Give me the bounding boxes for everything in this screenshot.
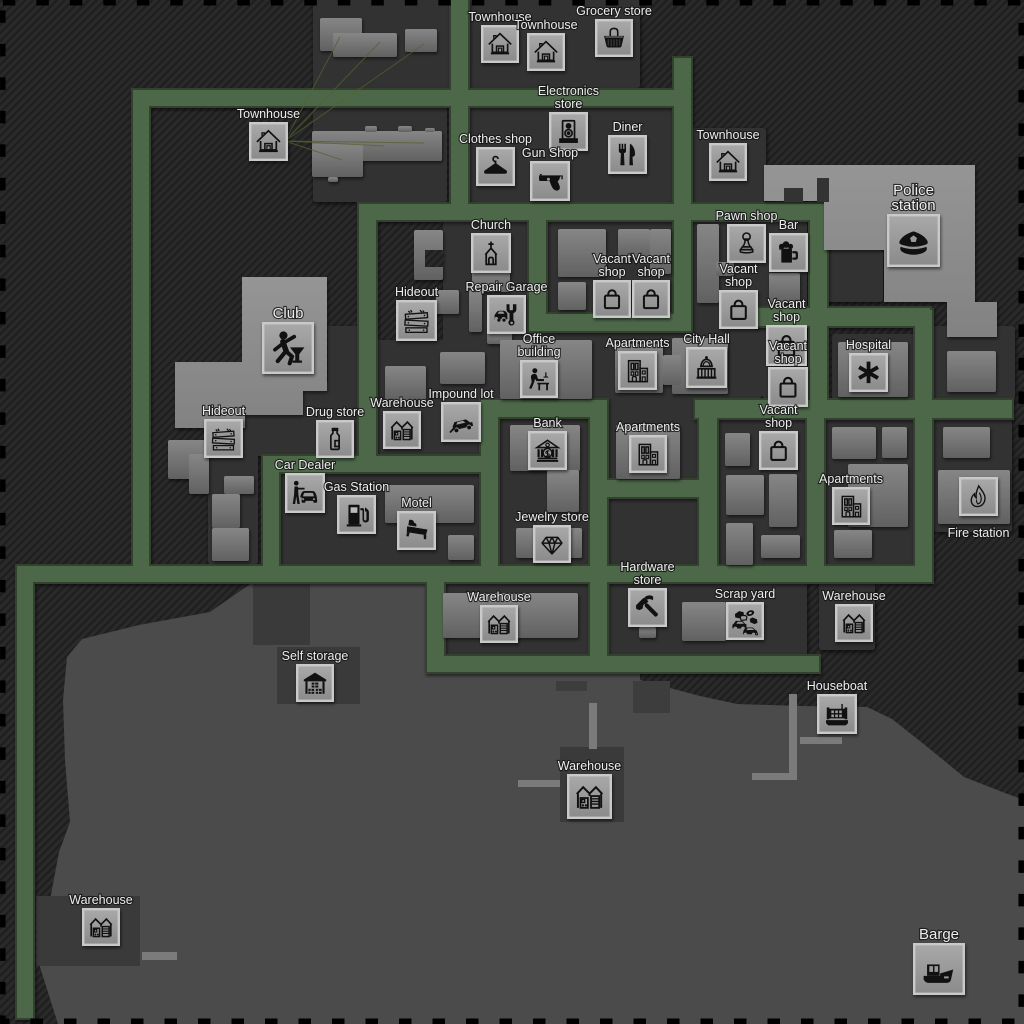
svg-text:Diner: Diner bbox=[613, 120, 643, 134]
svg-text:Vacant: Vacant bbox=[720, 262, 759, 276]
svg-text:Clothes shop: Clothes shop bbox=[459, 132, 532, 146]
svg-text:Pawn shop: Pawn shop bbox=[716, 209, 778, 223]
svg-text:Repair Garage: Repair Garage bbox=[466, 280, 548, 294]
svg-text:Vacant: Vacant bbox=[769, 339, 808, 353]
svg-text:Electronics: Electronics bbox=[538, 84, 599, 98]
svg-text:shop: shop bbox=[637, 265, 664, 279]
svg-text:Vacant: Vacant bbox=[760, 403, 799, 417]
svg-text:station: station bbox=[891, 197, 935, 214]
svg-text:Apartments: Apartments bbox=[819, 472, 883, 486]
svg-text:Hardware: Hardware bbox=[620, 560, 674, 574]
svg-text:Club: Club bbox=[273, 305, 304, 322]
svg-text:shop: shop bbox=[598, 265, 625, 279]
svg-text:Gas Station: Gas Station bbox=[324, 480, 389, 494]
svg-text:City Hall: City Hall bbox=[683, 332, 730, 346]
svg-text:store: store bbox=[555, 97, 583, 111]
svg-text:Townhouse: Townhouse bbox=[696, 128, 759, 142]
svg-text:store: store bbox=[634, 573, 662, 587]
svg-text:Townhouse: Townhouse bbox=[514, 18, 577, 32]
svg-text:Scrap yard: Scrap yard bbox=[715, 587, 775, 601]
svg-text:Vacant: Vacant bbox=[632, 252, 671, 266]
svg-text:Hideout: Hideout bbox=[202, 404, 246, 418]
svg-text:shop: shop bbox=[774, 352, 801, 366]
svg-text:Fire station: Fire station bbox=[948, 526, 1010, 540]
svg-text:shop: shop bbox=[765, 416, 792, 430]
svg-text:Car Dealer: Car Dealer bbox=[275, 458, 335, 472]
svg-text:Office: Office bbox=[523, 332, 555, 346]
svg-text:Warehouse: Warehouse bbox=[467, 590, 531, 604]
svg-text:building: building bbox=[517, 345, 560, 359]
svg-text:Impound lot: Impound lot bbox=[428, 387, 494, 401]
svg-text:Bar: Bar bbox=[779, 218, 798, 232]
svg-text:shop: shop bbox=[725, 275, 752, 289]
svg-text:Barge: Barge bbox=[919, 926, 959, 943]
svg-text:Bank: Bank bbox=[533, 416, 562, 430]
svg-text:Vacant: Vacant bbox=[593, 252, 632, 266]
svg-text:Apartments: Apartments bbox=[616, 420, 680, 434]
svg-text:shop: shop bbox=[773, 310, 800, 324]
svg-text:Jewelry store: Jewelry store bbox=[515, 510, 589, 524]
svg-text:Vacant: Vacant bbox=[768, 297, 807, 311]
svg-text:Warehouse: Warehouse bbox=[822, 589, 886, 603]
svg-text:Townhouse: Townhouse bbox=[237, 107, 300, 121]
svg-text:Self storage: Self storage bbox=[282, 649, 349, 663]
svg-text:Apartments: Apartments bbox=[606, 336, 670, 350]
svg-text:Motel: Motel bbox=[401, 496, 432, 510]
svg-text:Grocery store: Grocery store bbox=[576, 4, 652, 18]
svg-text:Church: Church bbox=[471, 218, 511, 232]
svg-text:Gun Shop: Gun Shop bbox=[522, 146, 578, 160]
svg-text:Drug store: Drug store bbox=[306, 405, 364, 419]
svg-text:Warehouse: Warehouse bbox=[69, 893, 133, 907]
svg-text:Hospital: Hospital bbox=[846, 338, 891, 352]
svg-text:Warehouse: Warehouse bbox=[370, 396, 434, 410]
svg-text:Warehouse: Warehouse bbox=[558, 759, 622, 773]
svg-text:Houseboat: Houseboat bbox=[807, 679, 868, 693]
svg-text:Hideout: Hideout bbox=[395, 285, 439, 299]
